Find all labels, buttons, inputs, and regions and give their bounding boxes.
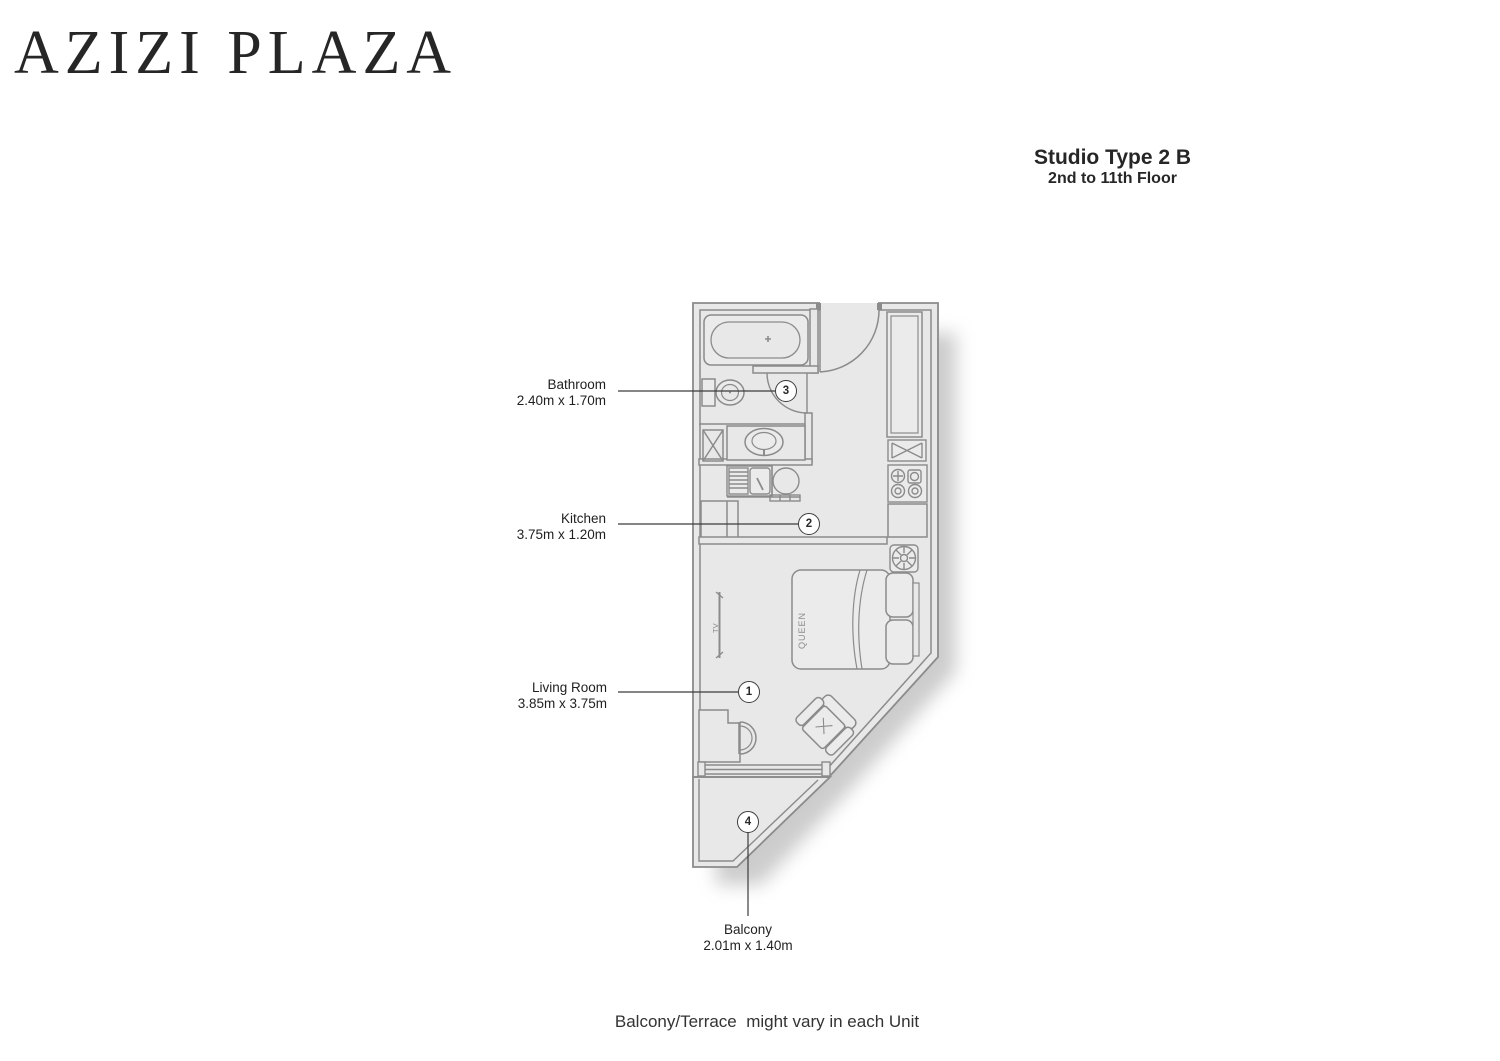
side-table <box>890 545 918 572</box>
room-dimensions: 2.40m x 1.70m <box>436 393 606 409</box>
wardrobe <box>887 312 922 437</box>
room-dimensions: 2.01m x 1.40m <box>663 938 833 954</box>
room-name: Bathroom <box>436 377 606 393</box>
room-dimensions: 3.75m x 1.20m <box>436 527 606 543</box>
bathtub <box>704 315 808 365</box>
counter-right <box>888 504 927 537</box>
bed <box>792 570 919 669</box>
page: AZIZI PLAZA Studio Type 2 B 2nd to 11th … <box>0 0 1500 1061</box>
bed-size-label: QUEEN <box>797 559 807 649</box>
room-marker-kitchen: 2 <box>798 513 820 535</box>
room-label-bathroom: Bathroom 2.40m x 1.70m <box>436 377 606 409</box>
washing-machine <box>888 440 926 461</box>
room-marker-bathroom: 3 <box>775 380 797 402</box>
room-marker-living-room: 1 <box>738 681 760 703</box>
divider-wall <box>699 537 887 544</box>
floor-plan-drawing <box>0 0 1500 1061</box>
room-label-living-room: Living Room 3.85m x 3.75m <box>437 680 607 712</box>
vanity-sink <box>727 426 805 460</box>
kitchen-counter-left <box>701 501 738 538</box>
footnote: Balcony/Terrace might vary in each Unit <box>34 1012 1500 1032</box>
room-name: Balcony <box>663 922 833 938</box>
room-name: Living Room <box>437 680 607 696</box>
room-label-kitchen: Kitchen 3.75m x 1.20m <box>436 511 606 543</box>
cooktop <box>888 465 927 502</box>
tv-label: TV <box>711 603 720 633</box>
room-label-balcony: Balcony 2.01m x 1.40m <box>663 922 833 954</box>
room-name: Kitchen <box>436 511 606 527</box>
room-dimensions: 3.85m x 3.75m <box>437 696 607 712</box>
room-marker-balcony: 4 <box>737 811 759 833</box>
toilet <box>702 379 744 406</box>
